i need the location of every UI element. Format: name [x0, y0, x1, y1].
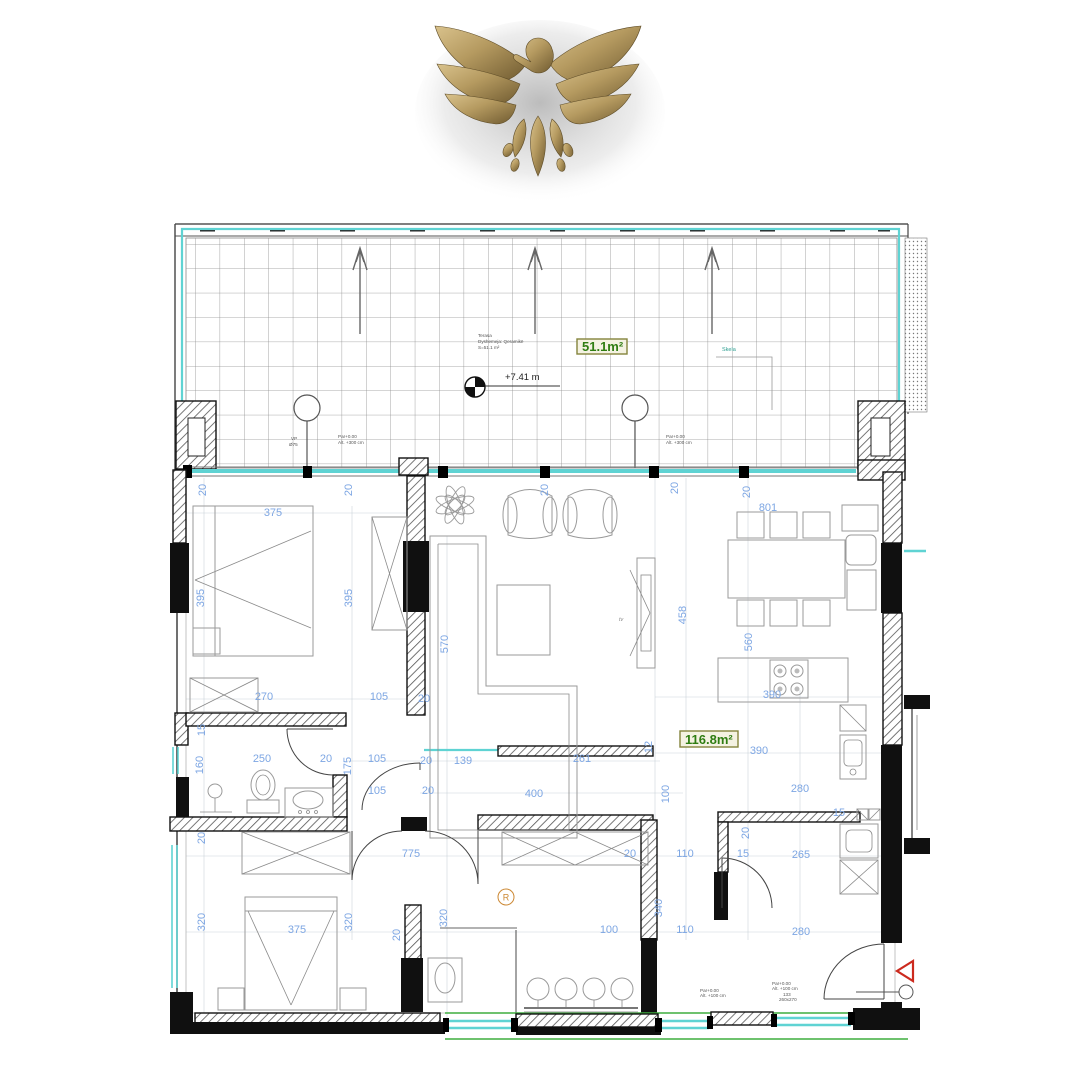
dimension-label: 100	[660, 785, 672, 803]
dimension-label: 20	[740, 827, 752, 839]
bed1-icon	[193, 506, 313, 656]
svg-text:51.1m²: 51.1m²	[582, 339, 624, 354]
dimension-label: 20	[420, 755, 432, 767]
tiny-note: Alt. +300 cm	[666, 440, 692, 445]
dimension-label: 390	[763, 689, 781, 701]
entrance-door	[824, 944, 884, 999]
doors	[287, 729, 884, 999]
dimension-label: 458	[677, 606, 689, 624]
dimension-label: 20	[422, 785, 434, 797]
wall-bed2-top	[170, 817, 347, 831]
plan-canvas: +7.41 m Terasa Dyshemeja: Qeramikë S=51.…	[0, 0, 1080, 1080]
dimension-label: 400	[525, 788, 543, 800]
bath-fixture-icon	[200, 784, 232, 812]
wall-bath-top	[186, 713, 346, 726]
dimension-label: 15	[737, 848, 749, 860]
dimension-label: 20	[624, 848, 636, 860]
dimension-label: 15	[833, 807, 845, 819]
dimension-label: 375	[288, 924, 306, 936]
dimension-label: 20	[196, 832, 208, 844]
wall-bath-right	[333, 775, 347, 817]
tiny-note: VP	[291, 436, 297, 441]
bath2-sink-icon	[428, 958, 462, 1002]
dimension-label: 270	[255, 691, 273, 703]
apartment-area-label: 116.8m²	[680, 731, 738, 747]
bottom-facade	[171, 1008, 920, 1039]
terrace-area-label: 51.1m²	[577, 339, 627, 354]
dimension-label: 20	[391, 929, 403, 941]
level-label: +7.41 m	[505, 372, 540, 383]
dimension-label: 175	[342, 757, 354, 775]
dresser1-icon	[190, 678, 258, 712]
terrace: +7.41 m Terasa Dyshemeja: Qeramikë S=51.…	[175, 224, 927, 470]
dining-set-icon	[728, 512, 845, 626]
tiny-note: Alt. +100 cm	[772, 986, 798, 991]
svg-text:Skela: Skela	[722, 347, 737, 353]
wall-pantry-left	[718, 822, 728, 872]
dimension-label: 801	[759, 502, 777, 514]
dimension-label: 160	[194, 756, 206, 774]
dimension-label: 395	[343, 589, 355, 607]
dimension-label: 20	[320, 753, 332, 765]
dimension-label: 20	[343, 484, 355, 496]
pantry-door	[722, 858, 772, 908]
tiny-note: Ø75	[289, 442, 298, 447]
dimension-labels: 2037520202080120395395570458560270105203…	[194, 482, 845, 941]
top-window-glazing	[192, 469, 856, 473]
dimension-label: 775	[402, 848, 420, 860]
dimension-label: 105	[370, 691, 388, 703]
dimension-label: 261	[573, 753, 591, 765]
dimension-label: 375	[264, 507, 282, 519]
coffee-table-icon	[497, 585, 550, 655]
dimension-label: 105	[368, 785, 386, 797]
plant-icon	[434, 484, 476, 526]
dimension-label: 320	[343, 913, 355, 931]
bath1-door	[287, 729, 333, 775]
armchair-icons	[503, 490, 617, 539]
coat-hooks-icon	[524, 978, 638, 1012]
dimension-label: 20	[539, 484, 551, 496]
dimension-label: 280	[792, 926, 810, 938]
kitchen-island-icon	[718, 658, 848, 702]
left-wall	[170, 470, 193, 1034]
dimension-label: 12	[643, 741, 655, 753]
toilet-icon	[247, 770, 279, 813]
wardrobe1-icon	[372, 517, 407, 630]
dimension-label: 110	[676, 848, 694, 860]
dimension-label: 320	[438, 909, 450, 927]
tiny-note: 260x270	[779, 997, 797, 1002]
dimension-label: 570	[439, 635, 451, 653]
bath-sink-icon	[285, 788, 333, 817]
gold-eagle-logo	[415, 20, 665, 204]
dimension-label: 20	[741, 486, 753, 498]
tv-unit-icon	[630, 558, 655, 668]
bedroom2-door	[352, 831, 402, 880]
dimension-label: 320	[196, 913, 208, 931]
dimension-label: 560	[743, 633, 755, 651]
radiator-marker: R	[498, 889, 514, 905]
dimension-label: 110	[676, 924, 694, 936]
bath2-door	[425, 831, 478, 884]
dimension-label: 340	[653, 899, 665, 917]
dimension-label: 280	[791, 783, 809, 795]
tiny-note: Par+0.00	[338, 434, 357, 439]
dimension-label: 20	[669, 482, 681, 494]
svg-text:Dyshemeja: Qeramikë: Dyshemeja: Qeramikë	[478, 339, 524, 344]
dimension-label: 20	[418, 693, 430, 705]
tiny-note: Par+0.00	[666, 434, 685, 439]
svg-text:S=51.1 m²: S=51.1 m²	[478, 345, 500, 350]
tiny-note: Alt. +300 cm	[338, 440, 364, 445]
dimension-label: 265	[792, 849, 810, 861]
wall-bath2-left	[405, 905, 421, 960]
dimension-label: 390	[750, 745, 768, 757]
wall-hall-kitchen	[641, 820, 657, 940]
tiny-note: Alt. +100 cm	[700, 993, 726, 998]
column-top-left	[176, 401, 216, 469]
markers: R tv 116.8m²	[498, 617, 913, 999]
svg-text:Terasa: Terasa	[478, 333, 492, 338]
dimension-label: 100	[600, 924, 618, 936]
terrace-tile-grid	[186, 238, 897, 468]
dimension-label: 139	[454, 755, 472, 767]
terrace-stipple-strip	[905, 238, 927, 412]
right-wall	[881, 472, 930, 1030]
dimension-label: 395	[195, 589, 207, 607]
column-top-right	[858, 401, 905, 469]
svg-text:116.8m²: 116.8m²	[685, 732, 733, 747]
floor-plan-sheet: +7.41 m Terasa Dyshemeja: Qeramikë S=51.…	[0, 0, 1080, 1080]
wall-hall-bottom	[478, 815, 653, 830]
tv-label: tv	[619, 617, 625, 623]
kitchen-counter-icon	[840, 505, 878, 779]
svg-text:R: R	[503, 893, 510, 903]
dimension-label: 15	[196, 724, 208, 736]
dimension-label: 250	[253, 753, 271, 765]
closet2-icon	[242, 832, 350, 874]
dimension-label: 105	[368, 753, 386, 765]
dimension-label: 20	[197, 484, 209, 496]
